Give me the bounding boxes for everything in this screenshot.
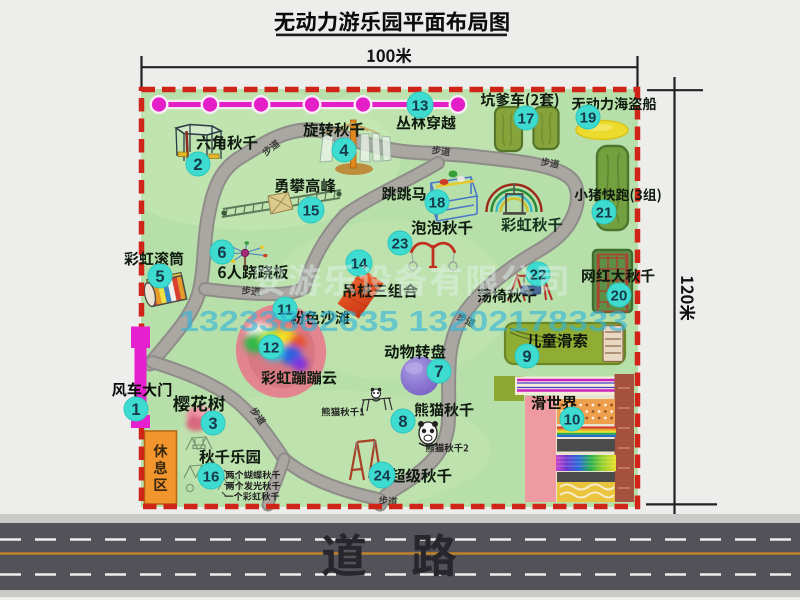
svg-text:13: 13 (412, 97, 429, 114)
svg-text:6: 6 (217, 244, 226, 262)
svg-text:24: 24 (374, 467, 391, 484)
svg-text:15: 15 (303, 202, 320, 219)
svg-text:16: 16 (203, 468, 220, 485)
svg-text:3: 3 (208, 415, 217, 433)
svg-text:18: 18 (429, 194, 446, 211)
svg-text:7: 7 (434, 363, 443, 381)
svg-text:19: 19 (580, 109, 597, 126)
svg-text:20: 20 (611, 287, 628, 304)
svg-text:9: 9 (522, 348, 531, 366)
svg-text:12: 12 (263, 339, 280, 356)
svg-text:17: 17 (518, 110, 535, 127)
svg-text:5: 5 (155, 268, 164, 286)
svg-text:2: 2 (193, 156, 202, 174)
svg-text:1: 1 (131, 401, 140, 419)
svg-text:8: 8 (398, 413, 407, 431)
svg-text:21: 21 (596, 204, 613, 221)
svg-text:13233862635 13202178333: 13233862635 13202178333 (179, 306, 628, 338)
svg-text:10: 10 (564, 411, 581, 428)
svg-text:23: 23 (392, 235, 409, 252)
svg-text:4: 4 (339, 142, 349, 160)
